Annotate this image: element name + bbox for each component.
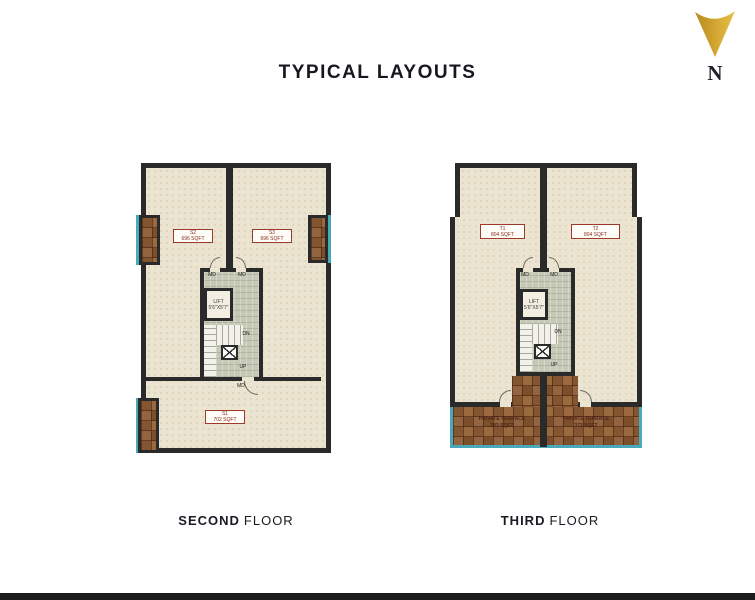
caption-third-floor: THIRDFLOOR [450, 513, 650, 528]
wall-segment [226, 163, 233, 268]
wall-segment [263, 377, 321, 381]
caption-bold: THIRD [501, 513, 546, 528]
balcony [138, 398, 159, 453]
unit-label: T2 804 SQFT [571, 224, 620, 239]
door-label: MD [545, 272, 563, 278]
door-label: MD [233, 272, 251, 278]
compass: N [692, 8, 738, 88]
plan-second-floor: MD MD LIFT 5'6"X5'7" DN UP MD S2 696 SQF… [136, 158, 336, 458]
page-title: TYPICAL LAYOUTS [0, 62, 755, 84]
wall-segment [540, 376, 547, 447]
door-gap [580, 402, 591, 407]
unit-label: S2 696 SQFT [173, 229, 213, 243]
door-label: MD [203, 272, 221, 278]
stair-void [534, 344, 551, 359]
stair-up-label: UP [545, 362, 563, 368]
stair-up-label: UP [234, 364, 252, 370]
door-gap [500, 402, 511, 407]
wall-segment [540, 163, 547, 268]
lift-room: LIFT 5'6"X5'7" [520, 289, 548, 320]
caption-rest: FLOOR [549, 513, 599, 528]
unit-label: S1 702 SQFT [205, 410, 245, 424]
unit-area: 702 SQFT [213, 417, 236, 423]
terrace-name: PRIVATE TERRACE [548, 416, 624, 423]
unit-label: S3 696 SQFT [252, 229, 292, 243]
stair-down-label: DN [237, 331, 255, 337]
north-arrow-icon [692, 8, 738, 58]
teal-edge [450, 407, 453, 448]
balcony [139, 215, 160, 265]
compass-letter: N [692, 61, 738, 86]
terrace-name: PRIVATE TERRACE [464, 416, 540, 423]
stair-flight [520, 324, 532, 372]
lift-size: 5'6"X5'7" [209, 305, 229, 311]
plan-third-floor: MD MD LIFT 5'6"X5'7" DN UP PRIVATE TERRA… [450, 158, 650, 458]
lift-room: LIFT 5'6"X5'7" [204, 288, 233, 321]
door-label: MD [516, 272, 534, 278]
stair-down-label: DN [549, 329, 567, 335]
unit-area: 804 SQFT [584, 232, 607, 238]
teal-edge [639, 407, 642, 448]
caption-bold: SECOND [178, 513, 240, 528]
unit-area: 696 SQFT [260, 236, 283, 242]
bottom-bar [0, 593, 755, 600]
caption-second-floor: SECONDFLOOR [136, 513, 336, 528]
terrace-label: PRIVATE TERRACE 372 SQFT [548, 416, 624, 430]
stair-void [221, 345, 238, 360]
unit-area: 696 SQFT [181, 236, 204, 242]
page: TYPICAL LAYOUTS N [0, 0, 755, 600]
unit-area: 804 SQFT [491, 232, 514, 238]
terrace-area: 383 SQFT [464, 423, 540, 430]
door-label: MD [232, 383, 250, 389]
balcony [308, 215, 328, 263]
stair-flight [204, 325, 216, 377]
unit-label: T1 804 SQFT [480, 224, 525, 239]
lift-size: 5'6"X5'7" [524, 305, 544, 311]
terrace-area: 372 SQFT [548, 423, 624, 430]
caption-rest: FLOOR [244, 513, 294, 528]
wall-segment [146, 377, 200, 381]
terrace-label: PRIVATE TERRACE 383 SQFT [464, 416, 540, 430]
